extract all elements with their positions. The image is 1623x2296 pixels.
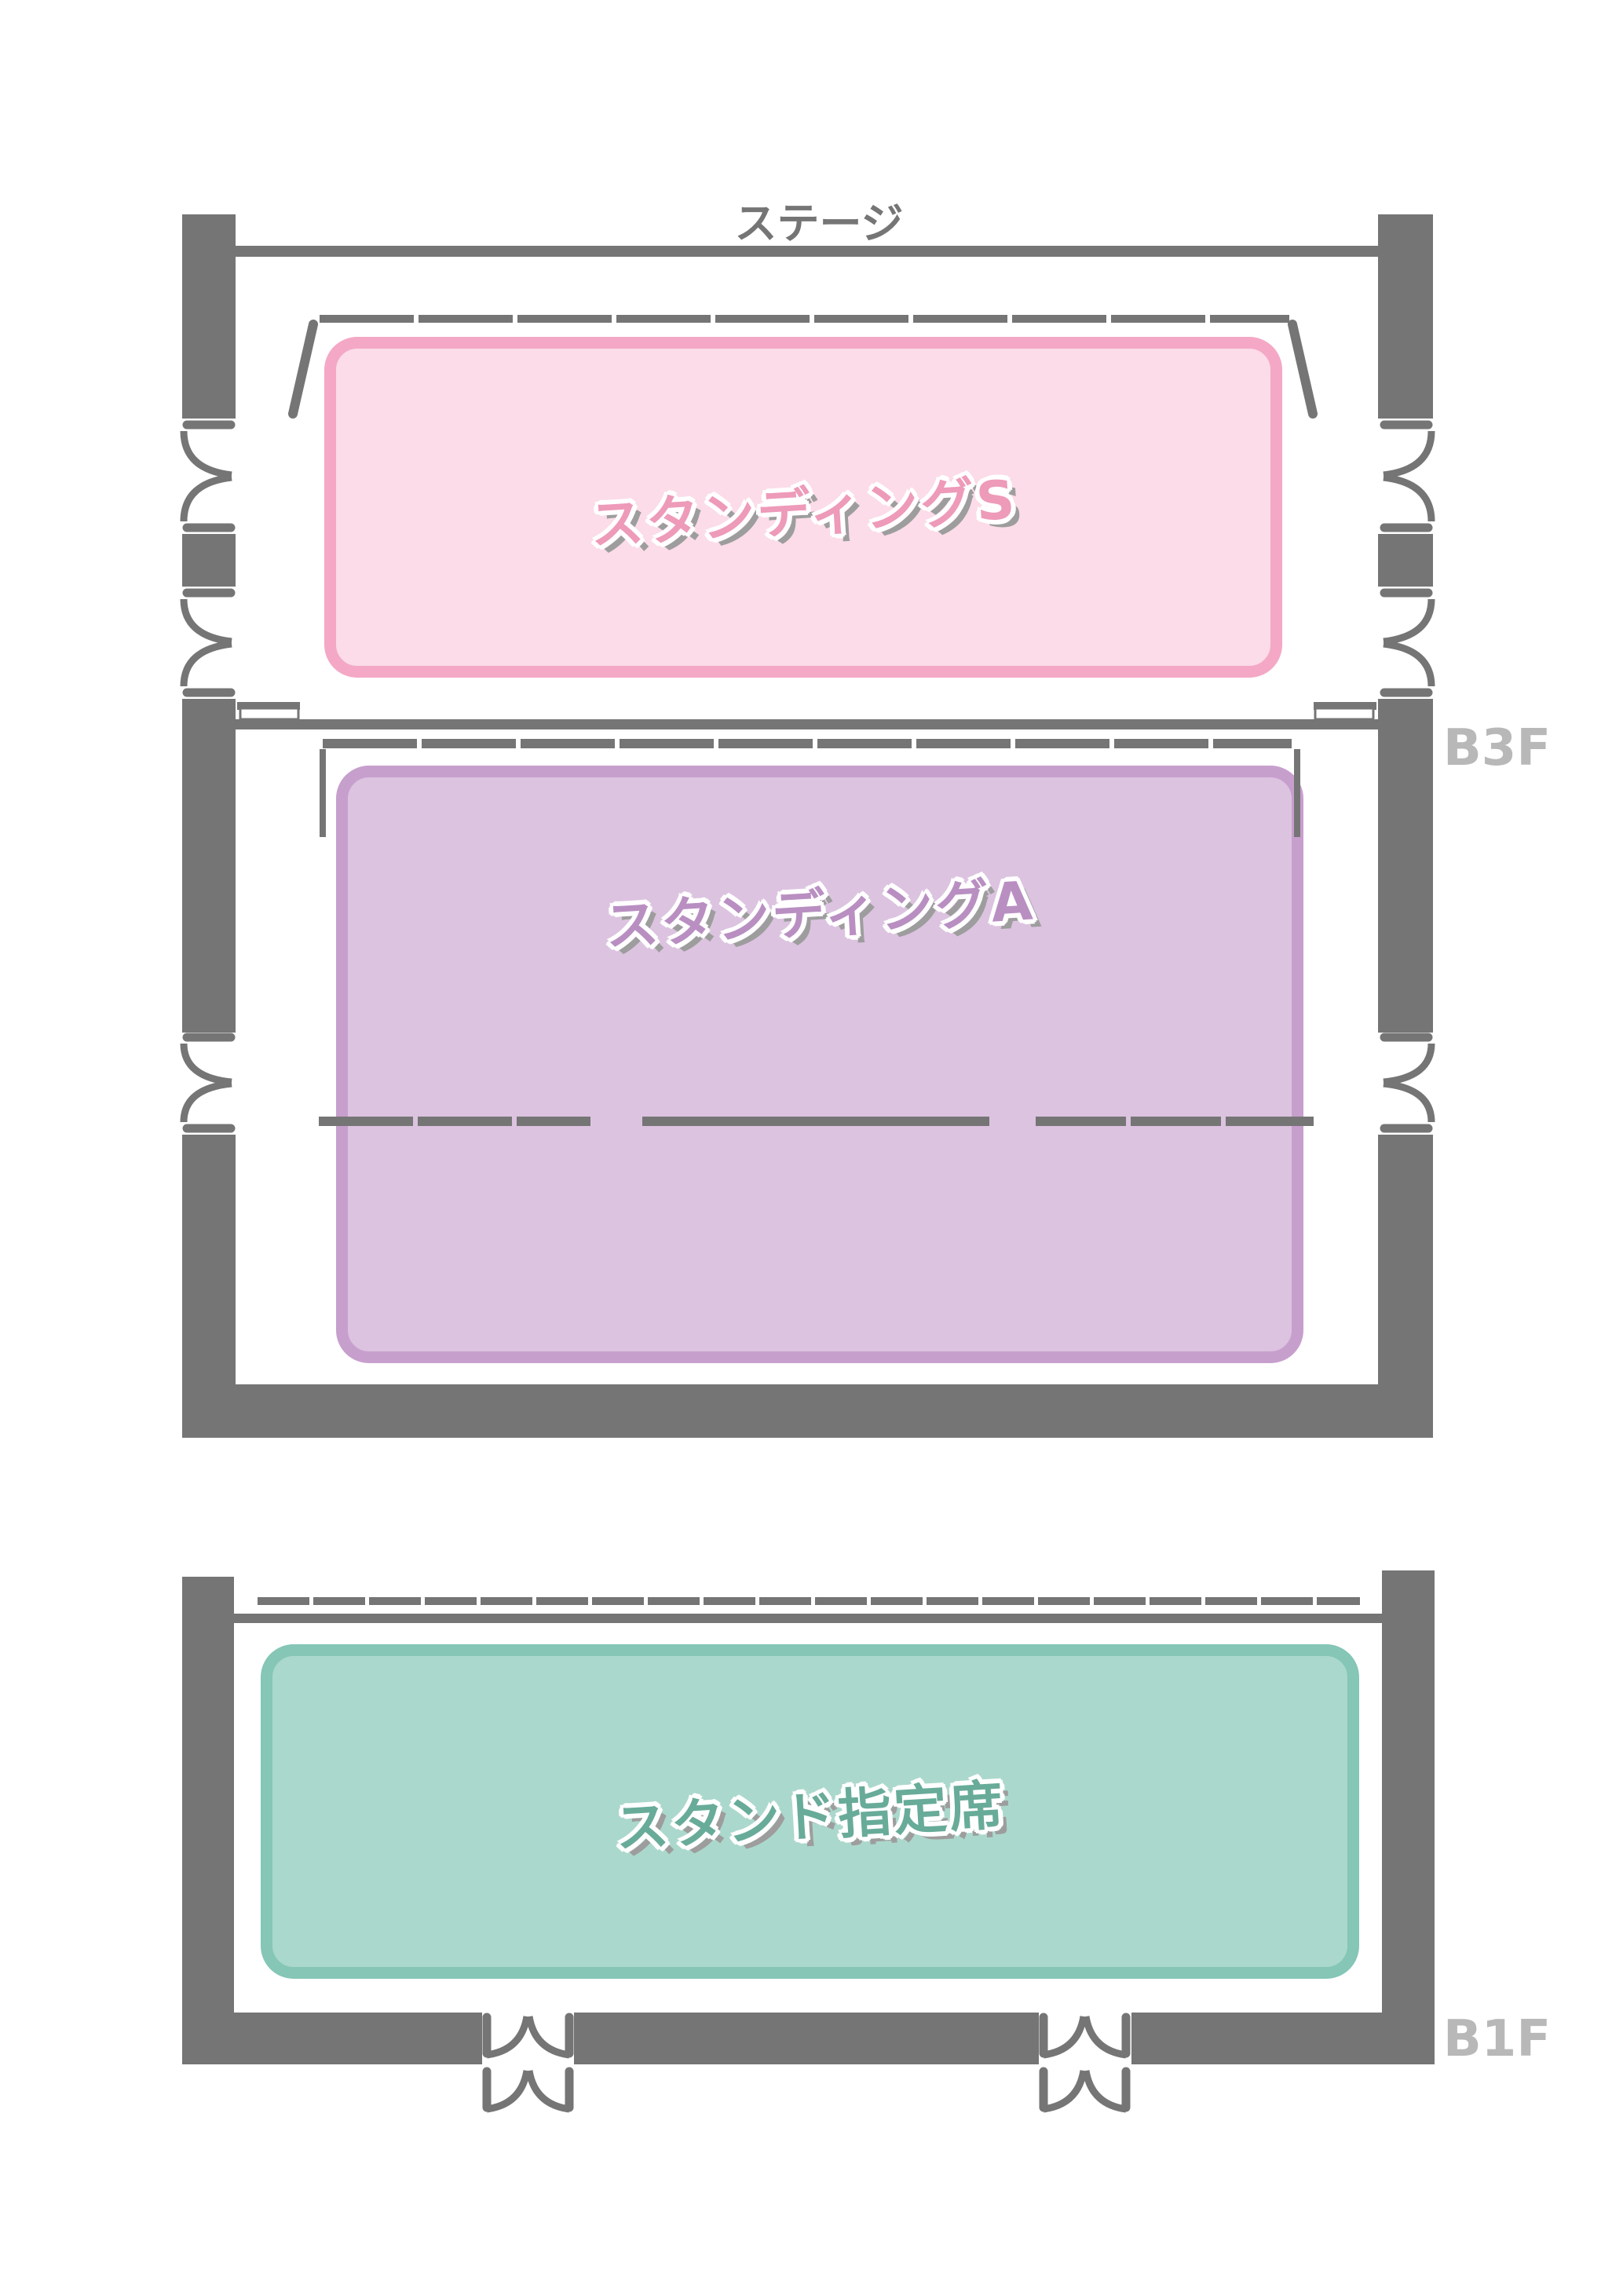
b3f-wall-right-low xyxy=(1378,1135,1433,1384)
b1f-wall-bottom-right xyxy=(1131,2013,1435,2064)
venue-floor-map: スタンディングS スタンディングA スタンド指定席 xyxy=(0,0,1623,2296)
b3f-mid-wall-right-stub xyxy=(1314,702,1376,710)
door-left-3 xyxy=(184,1037,232,1128)
door-right-2 xyxy=(1384,593,1431,693)
zone-standing-s-label: スタンディングS xyxy=(587,455,1018,559)
b3f-mid-wall-left-stub xyxy=(237,702,300,710)
b3f-wall-left-block xyxy=(182,534,236,587)
door-bottom-right-lower xyxy=(1044,2071,1126,2109)
b1f-wall-left-column xyxy=(182,1577,234,2064)
door-bottom-right-upper xyxy=(1044,2016,1126,2055)
b3f-wall-bottom xyxy=(182,1384,1433,1438)
b3f-wall-top-left-column xyxy=(182,214,236,419)
zone-stand-reserved-label: スタンド指定席 xyxy=(612,1760,1007,1862)
door-left-2 xyxy=(184,593,232,693)
b3f-wall-right-mid xyxy=(1378,699,1433,1033)
b3f-wall-left-low xyxy=(182,1135,236,1384)
b1f-wall-right-column xyxy=(1382,1570,1435,2064)
b3f-wall-right-block xyxy=(1378,534,1433,587)
zone-standing-a[interactable]: スタンディングA xyxy=(336,766,1303,1363)
floor-label-b3f: B3F xyxy=(1443,719,1551,777)
b1f-bottom-doors xyxy=(487,2016,1126,2109)
zone-standing-a-label: スタンディングA xyxy=(603,857,1037,960)
b3f-wall-top-right-column xyxy=(1378,214,1433,419)
barrier-end-left xyxy=(293,324,313,414)
barrier-end-right xyxy=(1292,324,1313,414)
door-pocket-left xyxy=(240,708,298,719)
b3f-mid-wall xyxy=(236,719,1378,729)
zone-stand-reserved[interactable]: スタンド指定席 xyxy=(261,1644,1359,1979)
floor-label-b1f: B1F xyxy=(1443,2010,1551,2068)
b1f-wall-top xyxy=(234,1614,1382,1623)
b1f-wall-bottom-center xyxy=(574,2013,1039,2064)
b3f-mid-wall-door-pockets xyxy=(240,708,1373,719)
zone-standing-s[interactable]: スタンディングS xyxy=(324,337,1282,678)
door-right-3 xyxy=(1384,1037,1431,1128)
door-bottom-left-upper xyxy=(487,2016,569,2055)
door-left-1 xyxy=(184,425,232,528)
b1f-wall-bottom-left xyxy=(182,2013,482,2064)
door-pocket-right xyxy=(1315,708,1373,719)
stage-label: ステージ xyxy=(733,188,905,250)
door-bottom-left-lower xyxy=(487,2071,569,2109)
b3f-wall-left-mid xyxy=(182,699,236,1033)
door-right-1 xyxy=(1384,425,1431,528)
